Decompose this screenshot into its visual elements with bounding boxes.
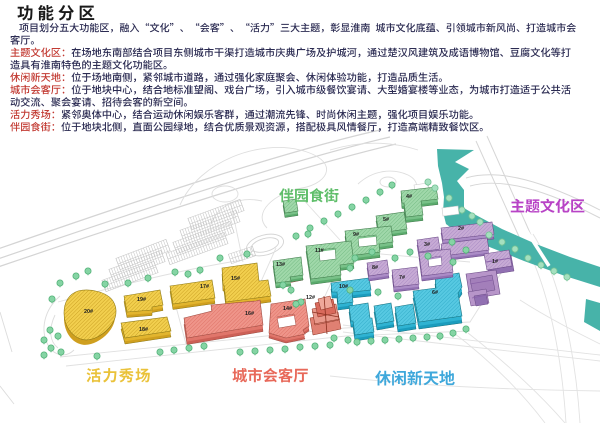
svg-text:9#: 9#	[353, 232, 359, 238]
svg-text:6#: 6#	[432, 290, 438, 296]
svg-text:2#: 2#	[458, 226, 464, 232]
svg-text:19#: 19#	[137, 297, 146, 303]
svg-text:8#: 8#	[372, 265, 378, 271]
svg-text:18#: 18#	[139, 327, 148, 333]
svg-text:20#: 20#	[84, 309, 93, 315]
svg-text:1#: 1#	[492, 259, 498, 265]
svg-text:17#: 17#	[200, 284, 209, 290]
svg-text:13#: 13#	[276, 262, 285, 268]
svg-text:5#: 5#	[383, 217, 389, 223]
svg-text:16#: 16#	[245, 311, 254, 317]
svg-text:11#: 11#	[315, 248, 324, 254]
svg-text:14#: 14#	[283, 306, 292, 312]
svg-text:3#: 3#	[424, 242, 430, 248]
svg-text:12#: 12#	[306, 295, 315, 301]
svg-text:15#: 15#	[231, 276, 240, 282]
svg-text:7#: 7#	[399, 275, 405, 281]
svg-text:4#: 4#	[406, 194, 412, 200]
